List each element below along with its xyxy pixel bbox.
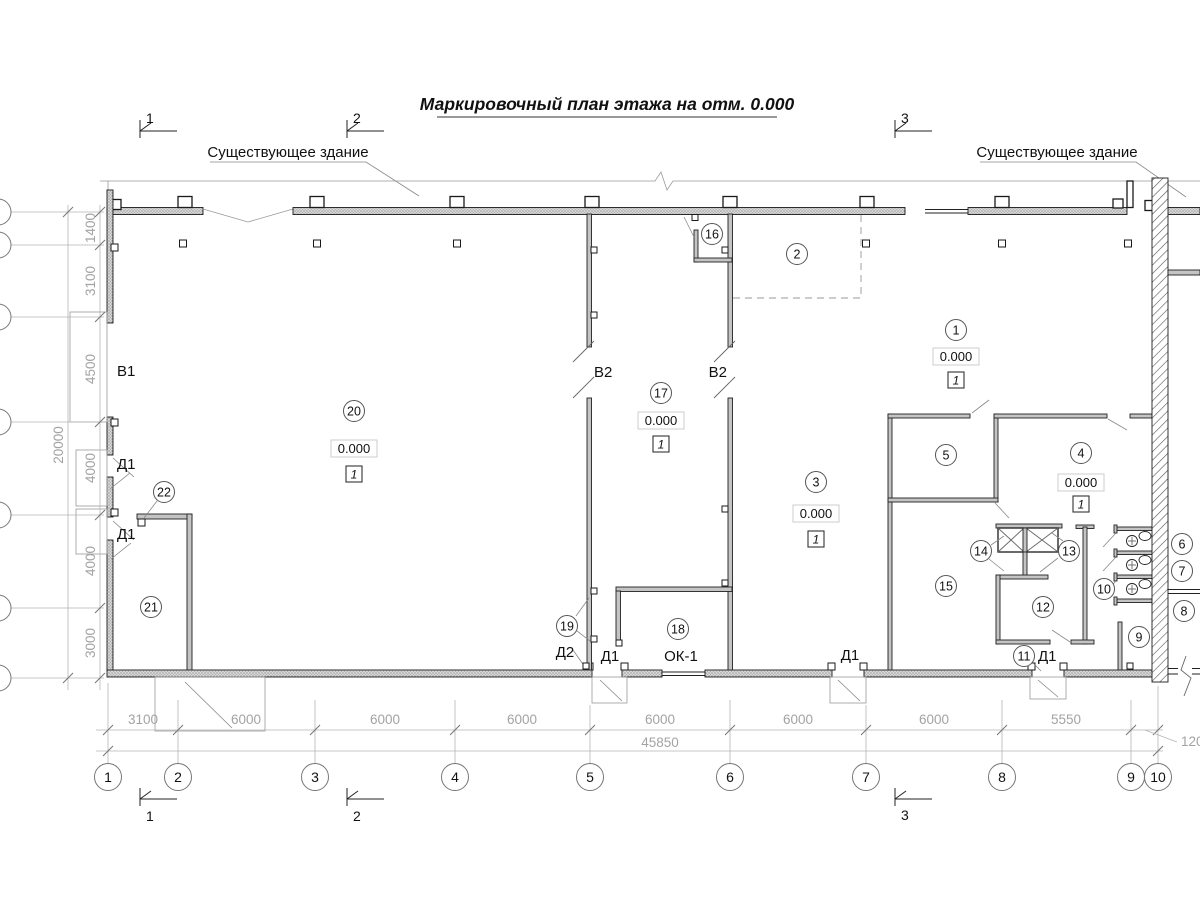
room-marker-17: 17 0.000 1	[638, 383, 684, 453]
room-marker-6: 6	[1172, 534, 1193, 555]
row-grid-bubbles	[0, 199, 11, 691]
room-number: 17	[654, 387, 668, 401]
dim-value: 3100	[83, 266, 98, 296]
room-marker-3: 3 0.000 1	[793, 472, 839, 548]
door-label-d2: Д2	[556, 644, 589, 669]
grid-bubble: 1	[104, 769, 112, 785]
door-label-d1-lower: Д1	[111, 526, 136, 559]
bottom-wall	[107, 663, 1160, 677]
room-21-22-walls	[137, 501, 192, 672]
dim-value: 6000	[507, 712, 537, 727]
grid-bubble: 2	[174, 769, 182, 785]
room-marker-8: 8	[1174, 601, 1195, 622]
room-marker-7: 7	[1172, 561, 1193, 582]
section-number: 2	[353, 110, 361, 126]
room-number: 5	[943, 449, 950, 463]
room-marker-14: 14	[971, 541, 992, 562]
room-number: 7	[1179, 565, 1186, 579]
window-label-ok1: ОК-1	[664, 648, 698, 665]
section-number: 1	[146, 110, 154, 126]
existing-building-label-left: Существующее здание	[207, 144, 419, 196]
dim-value: 6000	[645, 712, 675, 727]
dim-value: 4000	[83, 546, 98, 576]
grid-bubble: 7	[862, 769, 870, 785]
annotation-text: Существующее здание	[207, 144, 368, 161]
room-number: 16	[705, 228, 719, 242]
room-number: 22	[157, 486, 171, 500]
room-marker-4: 4 0.000 1	[1058, 443, 1104, 513]
room-marker-18: 18	[668, 619, 689, 640]
grid-bubble: 6	[726, 769, 734, 785]
grid-bubble: 8	[998, 769, 1006, 785]
column-grid-bubbles: 1 2 3 4 5 6 7 8 9 10	[95, 764, 1172, 791]
door-label: Д1	[117, 526, 136, 543]
room-number: 8	[1181, 605, 1188, 619]
annotation-text: Существующее здание	[976, 144, 1137, 161]
dim-value: 6000	[231, 712, 261, 727]
room-number: 3	[813, 476, 820, 490]
room-number: 14	[974, 545, 988, 559]
section-mark-1-bottom: 1	[140, 788, 177, 824]
room-marker-21: 21	[141, 597, 162, 618]
floor-plan: Маркировочный план этажа на отм. 0.000 1…	[0, 0, 1200, 900]
room-number: 12	[1036, 601, 1050, 615]
section-number: 1	[146, 808, 154, 824]
partition-wall-axis5	[573, 214, 597, 670]
elevation-index: 1	[1078, 498, 1085, 512]
room-number: 13	[1062, 545, 1076, 559]
room-marker-22: 22	[154, 482, 175, 503]
dim-total: 45850	[641, 735, 679, 750]
drawing-sheet: Маркировочный план этажа на отм. 0.000 1…	[0, 0, 1200, 900]
room-marker-15: 15	[936, 576, 957, 597]
grid-bubble: 4	[451, 769, 459, 785]
elevation-value: 0.000	[645, 413, 678, 428]
section-number: 3	[901, 807, 909, 823]
room-number: 4	[1078, 447, 1085, 461]
elevation-value: 0.000	[940, 349, 973, 364]
partition-wall-axis6	[714, 214, 735, 670]
door-label: Д1	[117, 456, 136, 473]
dim-value: 3100	[128, 712, 158, 727]
door-label-d1-mid: Д1	[601, 648, 620, 665]
shaft-boxes	[996, 524, 1062, 578]
grid-bubble: 9	[1127, 769, 1135, 785]
elevation-value: 0.000	[800, 506, 833, 521]
top-wall	[107, 181, 1200, 222]
room-number: 19	[560, 620, 574, 634]
dim-value: 6000	[783, 712, 813, 727]
vent-label-v1: В1	[117, 363, 135, 380]
left-dimensions: 1400 3100 4500 4000 4000 3000 20000	[10, 205, 105, 690]
drawing-title: Маркировочный план этажа на отм. 0.000	[420, 94, 795, 117]
dim-total: 20000	[51, 426, 66, 464]
section-mark-2-bottom: 2	[347, 788, 384, 824]
dim-value: 3000	[83, 628, 98, 658]
room-number: 11	[1018, 650, 1031, 664]
room-number: 18	[671, 623, 685, 637]
section-number: 3	[901, 110, 909, 126]
room-marker-12: 12	[1033, 597, 1054, 618]
dimension-line-total: 45850	[96, 735, 1163, 756]
interior-column-row	[180, 240, 1132, 247]
dim-value: 4500	[83, 354, 98, 384]
room-marker-11: 11	[1014, 646, 1035, 667]
room-number: 15	[939, 580, 953, 594]
room-number: 21	[144, 601, 158, 615]
room-marker-5: 5	[936, 445, 957, 466]
room-marker-1: 1 0.000 1	[933, 320, 979, 389]
room-marker-20: 20 0.000 1	[331, 401, 377, 483]
grid-bubble: 10	[1150, 769, 1166, 785]
vent-label-v2-right: В2	[709, 364, 727, 381]
elevation-value: 0.000	[338, 441, 371, 456]
grid-bubble: 5	[586, 769, 594, 785]
room-number: 10	[1097, 583, 1111, 597]
room-9-wall	[1118, 622, 1122, 670]
door-label: Д2	[556, 644, 575, 661]
elevation-index: 1	[953, 374, 960, 388]
elevation-value: 0.000	[1065, 475, 1098, 490]
dim-value: 6000	[370, 712, 400, 727]
existing-building-outline	[100, 172, 1200, 190]
dim-value: 1400	[83, 213, 98, 243]
room-number: 20	[347, 405, 361, 419]
room-marker-2: 2	[787, 244, 808, 265]
room-number: 2	[794, 248, 801, 262]
dim-value: 4000	[83, 453, 98, 483]
left-wall	[70, 190, 134, 670]
dim-value-offset: 120	[1181, 734, 1200, 749]
room-number: 1	[953, 324, 960, 338]
elevation-index: 1	[351, 468, 358, 482]
elevation-index: 1	[658, 438, 665, 452]
door-label-d1-right: Д1	[841, 647, 860, 664]
door-label-d1-room11: Д1	[1033, 648, 1057, 671]
room-marker-10: 10	[1094, 579, 1115, 600]
section-number: 2	[353, 808, 361, 824]
vent-label-v2-left: В2	[594, 364, 612, 381]
room-marker-19: 19	[557, 616, 578, 637]
section-mark-3-top: 3	[895, 110, 932, 138]
section-mark-1-top: 1	[140, 110, 177, 138]
dim-value: 6000	[919, 712, 949, 727]
room-marker-16: 16	[702, 224, 723, 245]
room-marker-13: 13	[1059, 541, 1080, 562]
room-number: 9	[1136, 631, 1143, 645]
room-marker-9: 9	[1129, 627, 1150, 648]
elevation-index: 1	[813, 533, 820, 547]
page-title: Маркировочный план этажа на отм. 0.000	[420, 94, 795, 114]
grid-bubble: 3	[311, 769, 319, 785]
door-label-d1-upper: Д1	[110, 456, 136, 489]
toilet-fixtures	[1127, 532, 1152, 595]
dim-value: 5550	[1051, 712, 1081, 727]
section-mark-3-bottom: 3	[895, 788, 932, 823]
room-number: 6	[1179, 538, 1186, 552]
section-mark-2-top: 2	[347, 110, 384, 138]
door-label: Д1	[1038, 648, 1057, 665]
